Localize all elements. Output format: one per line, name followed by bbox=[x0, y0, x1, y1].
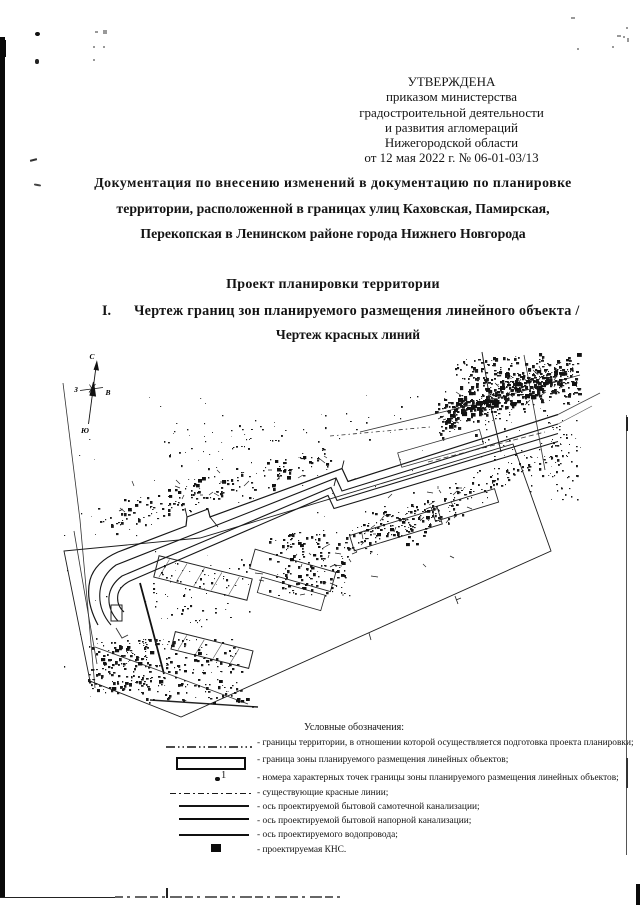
svg-text:В: В bbox=[104, 388, 110, 397]
svg-text:З: З bbox=[73, 385, 78, 394]
svg-text:Ю: Ю bbox=[80, 426, 89, 435]
svg-text:С: С bbox=[89, 352, 95, 361]
